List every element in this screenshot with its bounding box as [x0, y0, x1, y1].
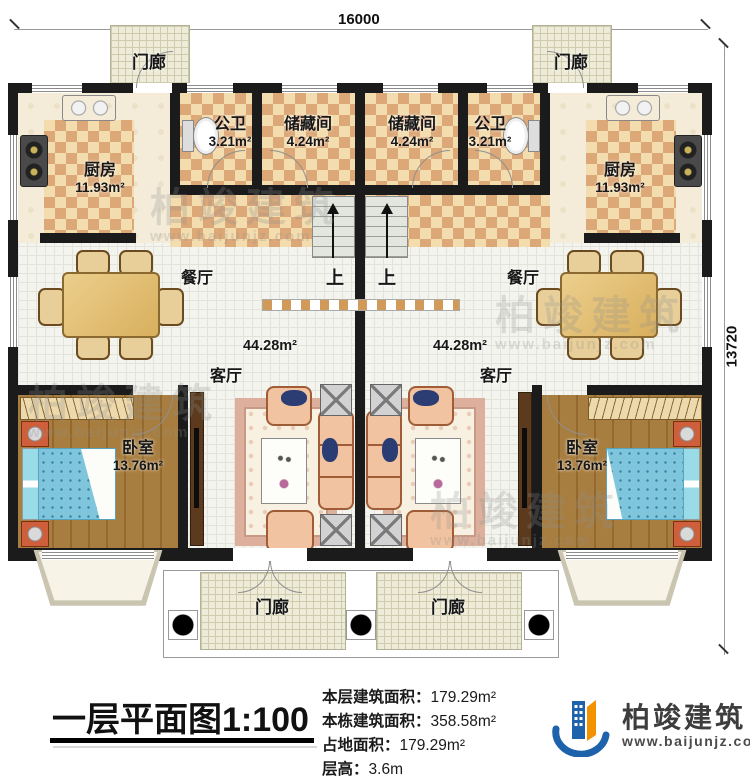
window — [566, 550, 678, 560]
dining-table — [560, 272, 658, 338]
storage-right-label: 储藏间 4.24m² — [376, 116, 448, 150]
dining-chair — [654, 288, 682, 326]
stats-block: 本层建筑面积：179.29m² 本栋建筑面积：358.58m² 占地面积：179… — [322, 686, 496, 776]
stat-value: 179.29m² — [400, 737, 465, 754]
person-figure — [281, 390, 307, 406]
room-area: 4.24m² — [272, 134, 344, 150]
armchair — [406, 510, 454, 552]
room-name: 卧室 — [542, 440, 622, 458]
door-opening — [413, 548, 487, 561]
window — [282, 83, 337, 93]
floor-plan-page: 16000 13720 厨房 11.93m² 厨房 11.93m² 公卫 3.2… — [0, 0, 750, 776]
window — [8, 277, 18, 347]
porch-column — [168, 610, 198, 640]
nightstand — [673, 421, 701, 447]
window — [702, 277, 712, 347]
stairs-up-label: 上 — [324, 268, 346, 289]
right-dimension-label: 13720 — [724, 317, 741, 377]
window — [187, 83, 233, 93]
armchair — [266, 510, 314, 552]
company-logo-text: 柏竣建筑 www.baijunjz.com — [622, 703, 750, 750]
bedroom-right-label: 卧室 13.76m² — [542, 440, 622, 474]
hall-area-right-label: 44.28m² — [423, 338, 497, 355]
stove-icon — [20, 135, 48, 187]
wall-bath-storage-right — [458, 83, 468, 195]
stat-row: 本层建筑面积：179.29m² — [322, 686, 496, 710]
wall-center — [355, 83, 365, 561]
nightstand — [673, 521, 701, 547]
drawing-title: 一层平面图1:100 — [52, 692, 309, 741]
wall-kitchen-bath-left — [170, 83, 180, 195]
stat-label: 本层建筑面积： — [322, 689, 431, 706]
stat-label: 层高： — [322, 761, 369, 776]
person-figure — [413, 390, 439, 406]
up-arrow-icon — [381, 203, 393, 214]
porch-column — [524, 610, 554, 640]
wall-kitchen-bottom-right — [584, 233, 680, 243]
tv-icon — [194, 428, 199, 508]
wardrobe — [20, 397, 134, 420]
sofa — [366, 410, 402, 510]
room-name: 厨房 — [58, 162, 142, 180]
window — [42, 550, 154, 560]
room-area: 13.76m² — [542, 458, 622, 474]
porch-bottom-right-label: 门廊 — [411, 598, 485, 618]
wall-bath-storage-left — [252, 83, 262, 195]
wall-kitchen-bath-right — [540, 83, 550, 195]
person-figure — [382, 438, 398, 462]
dimension-tick — [700, 19, 711, 30]
toilet-icon — [528, 120, 540, 152]
room-name: 卧室 — [98, 440, 178, 458]
window — [702, 135, 712, 220]
room-name: 储藏间 — [376, 116, 448, 134]
porch-bottom-left-label: 门廊 — [235, 598, 309, 618]
dining-table — [62, 272, 160, 338]
dining-left-label: 餐厅 — [165, 270, 229, 288]
stat-value: 3.6m — [369, 761, 403, 776]
hall-left-label: 客厅 — [194, 368, 258, 386]
door-opening — [233, 548, 307, 561]
wall-bedroom-top-left — [8, 385, 133, 395]
sink-icon — [606, 95, 660, 121]
stove-icon — [674, 135, 702, 187]
title-underline — [50, 738, 314, 743]
window — [32, 83, 82, 93]
company-name: 柏竣建筑 — [622, 703, 750, 734]
coffee-table — [415, 438, 461, 504]
window — [8, 135, 18, 220]
stat-value: 179.29m² — [431, 689, 496, 706]
up-arrow-icon — [332, 212, 334, 258]
stat-value: 358.58m² — [431, 713, 496, 730]
porch-top-right-label: 门廊 — [534, 53, 608, 73]
wall-bedroom-right-left — [178, 385, 188, 558]
up-arrow-icon — [327, 203, 339, 214]
wall-bedroom-left-right — [532, 385, 542, 558]
window — [383, 83, 438, 93]
window — [487, 83, 533, 93]
drawing-title-text: 一层平面图 — [52, 701, 222, 739]
partition-screen — [262, 299, 460, 311]
stat-label: 本栋建筑面积： — [322, 713, 431, 730]
porch-top-left-label: 门廊 — [112, 53, 186, 73]
storage-left-label: 储藏间 4.24m² — [272, 116, 344, 150]
sofa — [318, 410, 354, 510]
coffee-table — [261, 438, 307, 504]
tv-icon — [522, 428, 527, 508]
kitchen-left-label: 厨房 11.93m² — [58, 162, 142, 196]
company-logo: 柏竣建筑 www.baijunjz.com — [548, 695, 750, 757]
drawing-scale: 1:100 — [222, 701, 309, 739]
room-name: 储藏间 — [272, 116, 344, 134]
porch-column — [346, 610, 376, 640]
wall-bathstorage-bottom-left — [170, 185, 355, 195]
stat-row: 本栋建筑面积：358.58m² — [322, 710, 496, 734]
side-table — [370, 384, 402, 416]
wardrobe — [588, 397, 702, 420]
side-table — [320, 514, 352, 546]
dining-chair — [156, 288, 184, 326]
room-area: 11.93m² — [58, 180, 142, 196]
room-area: 4.24m² — [376, 134, 448, 150]
top-dimension-label: 16000 — [338, 11, 380, 28]
sink-icon — [62, 95, 116, 121]
stat-row: 占地面积：179.29m² — [322, 734, 496, 758]
side-table — [370, 514, 402, 546]
wall-bedroom-top-right — [587, 385, 712, 395]
kitchen-right-label: 厨房 11.93m² — [578, 162, 662, 196]
hall-area-left-label: 44.28m² — [233, 338, 307, 355]
bed — [682, 448, 700, 520]
stat-row: 层高：3.6m — [322, 758, 496, 776]
window — [638, 83, 688, 93]
person-figure — [322, 438, 338, 462]
room-area: 11.93m² — [578, 180, 662, 196]
company-site: www.baijunjz.com — [622, 733, 750, 749]
wall-bathstorage-bottom-right — [365, 185, 550, 195]
room-name: 厨房 — [578, 162, 662, 180]
stat-label: 占地面积： — [322, 737, 400, 754]
nightstand — [21, 521, 49, 547]
bedroom-left-label: 卧室 13.76m² — [98, 440, 178, 474]
dining-right-label: 餐厅 — [491, 270, 555, 288]
title-underline-shadow — [53, 746, 317, 748]
hall-right-label: 客厅 — [464, 368, 528, 386]
up-arrow-icon — [386, 212, 388, 258]
nightstand — [21, 421, 49, 447]
stairs-up-label: 上 — [376, 268, 398, 289]
side-table — [320, 384, 352, 416]
dimension-tick — [9, 19, 20, 30]
room-area: 13.76m² — [98, 458, 178, 474]
wall-kitchen-bottom-left — [40, 233, 136, 243]
company-logo-icon — [548, 695, 614, 757]
